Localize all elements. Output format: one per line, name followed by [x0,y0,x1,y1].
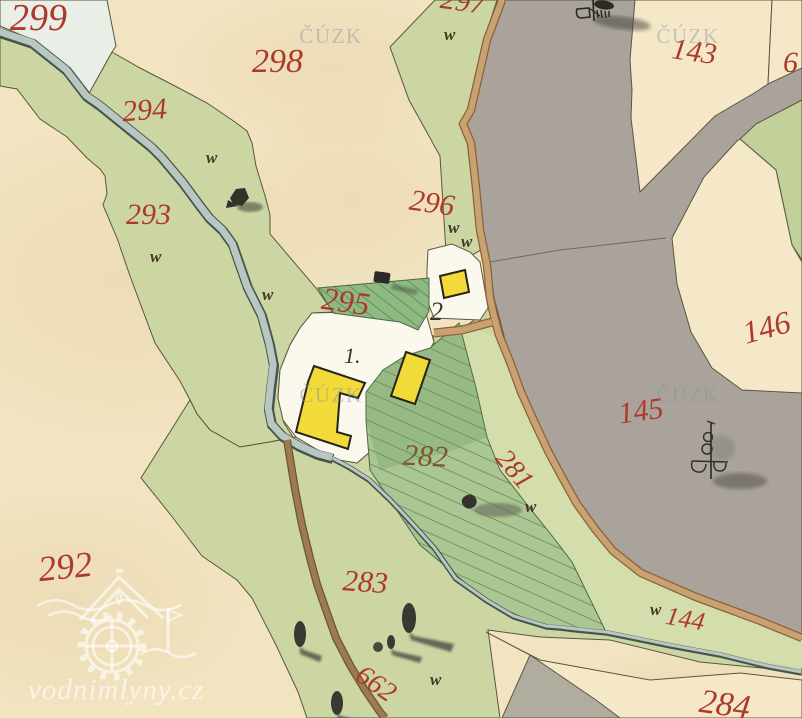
svg-text:292: 292 [36,544,94,589]
svg-text:w: w [461,232,473,251]
svg-text:ČÚZK: ČÚZK [656,24,719,48]
svg-text:296: 296 [407,184,456,223]
svg-text:ČÚZK: ČÚZK [656,383,719,407]
svg-text:1.: 1. [344,343,361,368]
svg-text:w: w [444,25,456,44]
svg-text:299: 299 [10,0,67,39]
svg-text:vodnimlyny.cz: vodnimlyny.cz [28,674,204,706]
svg-text:w: w [650,600,662,619]
svg-text:w: w [206,148,218,167]
svg-text:284: 284 [697,683,753,718]
svg-text:w: w [262,285,274,304]
svg-text:2: 2 [430,297,443,326]
svg-text:298: 298 [252,43,303,80]
svg-text:282: 282 [402,439,449,474]
svg-text:283: 283 [342,564,389,600]
svg-text:294: 294 [121,92,168,128]
svg-text:w: w [150,247,162,266]
svg-text:ČÚZK: ČÚZK [299,24,362,48]
svg-text:ČÚZK: ČÚZK [299,383,362,407]
svg-text:w: w [525,497,537,516]
svg-text:293: 293 [126,198,171,231]
svg-text:w: w [448,218,460,237]
svg-text:6: 6 [783,46,798,79]
svg-text:295: 295 [320,280,373,322]
svg-text:w: w [430,670,442,689]
